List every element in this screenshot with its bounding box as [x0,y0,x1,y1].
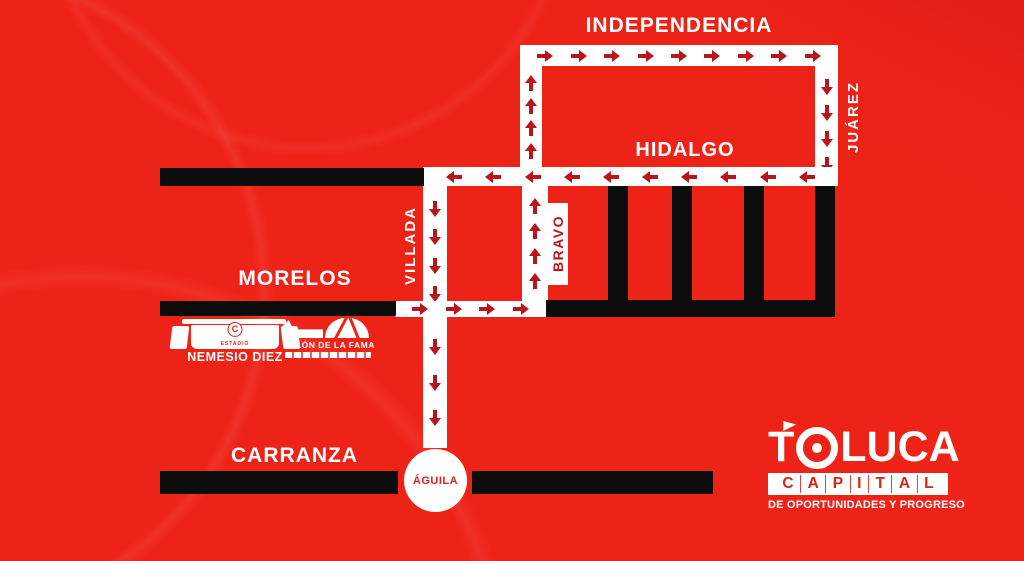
arrow-down-icon [822,79,832,95]
arrow-right-icon [537,51,553,61]
morelos-west-black-road [160,301,396,316]
stadium-stand-left-icon [170,326,190,349]
morelos-road [395,301,546,317]
arrow-down-icon [430,258,440,274]
juarez-south-black-road [815,186,835,301]
arrow-right-icon [738,51,754,61]
carranza-west-black-road [160,471,398,494]
arrow-up-icon [530,223,540,239]
hidalgo-west-black-road [160,168,424,186]
brand-tagline: DE OPORTUNIDADES Y PROGRESO [768,499,952,511]
arrow-up-icon [526,120,536,136]
salon-dome-icon [325,318,369,338]
villada-lower-road [423,317,447,448]
arrow-up-icon [530,198,540,214]
bravo-upper-road [520,66,542,168]
arrow-left-icon [799,172,815,182]
arrow-left-icon [564,172,580,182]
independencia-label: INDEPENDENCIA [520,14,838,38]
arrow-down-icon [430,339,440,355]
cross-street-black-2 [672,186,692,301]
juarez-label: JUÁREZ [845,81,862,153]
capital-letter: T [869,475,892,493]
estadio-small-text: ESTADIO [191,341,279,347]
arrow-up-icon [530,248,540,264]
estadio-nemesio-diez-logo: C ESTADIO NEMESIO DIEZ [170,318,300,364]
arrow-down-icon [822,105,832,121]
villada-upper-road [423,186,447,317]
salon-de-la-fama-logo: SALÓN DE LA FAMA [283,316,375,360]
morelos-label: MORELOS [195,267,395,291]
arrow-right-icon [771,51,787,61]
arrow-left-icon [720,172,736,182]
arrow-right-icon [805,51,821,61]
capital-banner: CAPITAL [768,473,948,495]
hidalgo-road [423,167,838,186]
arrow-left-icon [760,172,776,182]
club-crest-icon: C [228,322,243,337]
nemesio-diez-name: NEMESIO DIEZ [170,350,300,364]
arrow-right-icon [513,304,529,314]
capital-letter: L [918,475,940,493]
arrow-up-icon [526,98,536,114]
toluca-capital-logo: T LUCA CAPITAL DE OPORTUNIDADES Y PROGRE… [768,426,978,518]
cross-street-black-3 [744,186,764,301]
arrow-right-icon [604,51,620,61]
hidalgo-label: HIDALGO [560,139,810,162]
capital-letter: A [892,475,917,493]
arrow-right-icon [479,304,495,314]
arrow-right-icon [638,51,654,61]
arrow-right-icon [704,51,720,61]
toluca-wordmark: T LUCA [768,426,978,469]
stadium-body-icon: C ESTADIO [191,325,279,349]
arrow-left-icon [681,172,697,182]
arrow-up-icon [530,273,540,289]
toluca-target-o-icon [796,427,838,469]
carranza-east-black-road [472,471,713,494]
salon-subtitle-bar [285,352,371,358]
arrow-down-icon [430,410,440,426]
salon-de-la-fama-name: SALÓN DE LA FAMA [283,340,375,350]
arrow-right-icon [446,304,462,314]
arrow-down-icon [430,229,440,245]
arrow-left-icon [485,172,501,182]
arrow-down-icon [430,201,440,217]
independencia-road [520,45,838,66]
carranza-label: CARRANZA [192,444,397,468]
toluca-letters: LUCA [840,426,959,469]
capital-letter: I [851,475,869,493]
arrow-left-icon [642,172,658,182]
aguila-label: ÁGUILA [413,475,458,487]
toluca-route-map: INDEPENDENCIA HIDALGO JUÁREZ VILLADA BRA… [0,0,1024,561]
villada-label: VILLADA [402,206,419,285]
arrow-down-icon [822,131,832,147]
bravo-lower-road [522,186,548,301]
bravo-label: BRAVO [550,215,566,272]
cross-street-black-1 [608,186,628,301]
capital-letter: P [826,475,850,493]
arrow-right-icon [671,51,687,61]
arrow-left-icon [603,172,619,182]
capital-letter: C [776,475,801,493]
toluca-t-flag-letter: T [768,426,794,469]
arrow-down-icon [430,286,440,302]
capital-letter: A [801,475,826,493]
arrow-up-icon [526,143,536,159]
arrow-left-icon [446,172,462,182]
arrow-left-icon [525,172,541,182]
arrow-right-icon [571,51,587,61]
arrow-down-icon [430,375,440,391]
salon-swoosh-icon [283,320,323,338]
aguila-roundabout: ÁGUILA [404,449,467,512]
arrow-right-icon [412,304,428,314]
arrow-up-icon [526,75,536,91]
morelos-east-black-road [546,300,835,317]
